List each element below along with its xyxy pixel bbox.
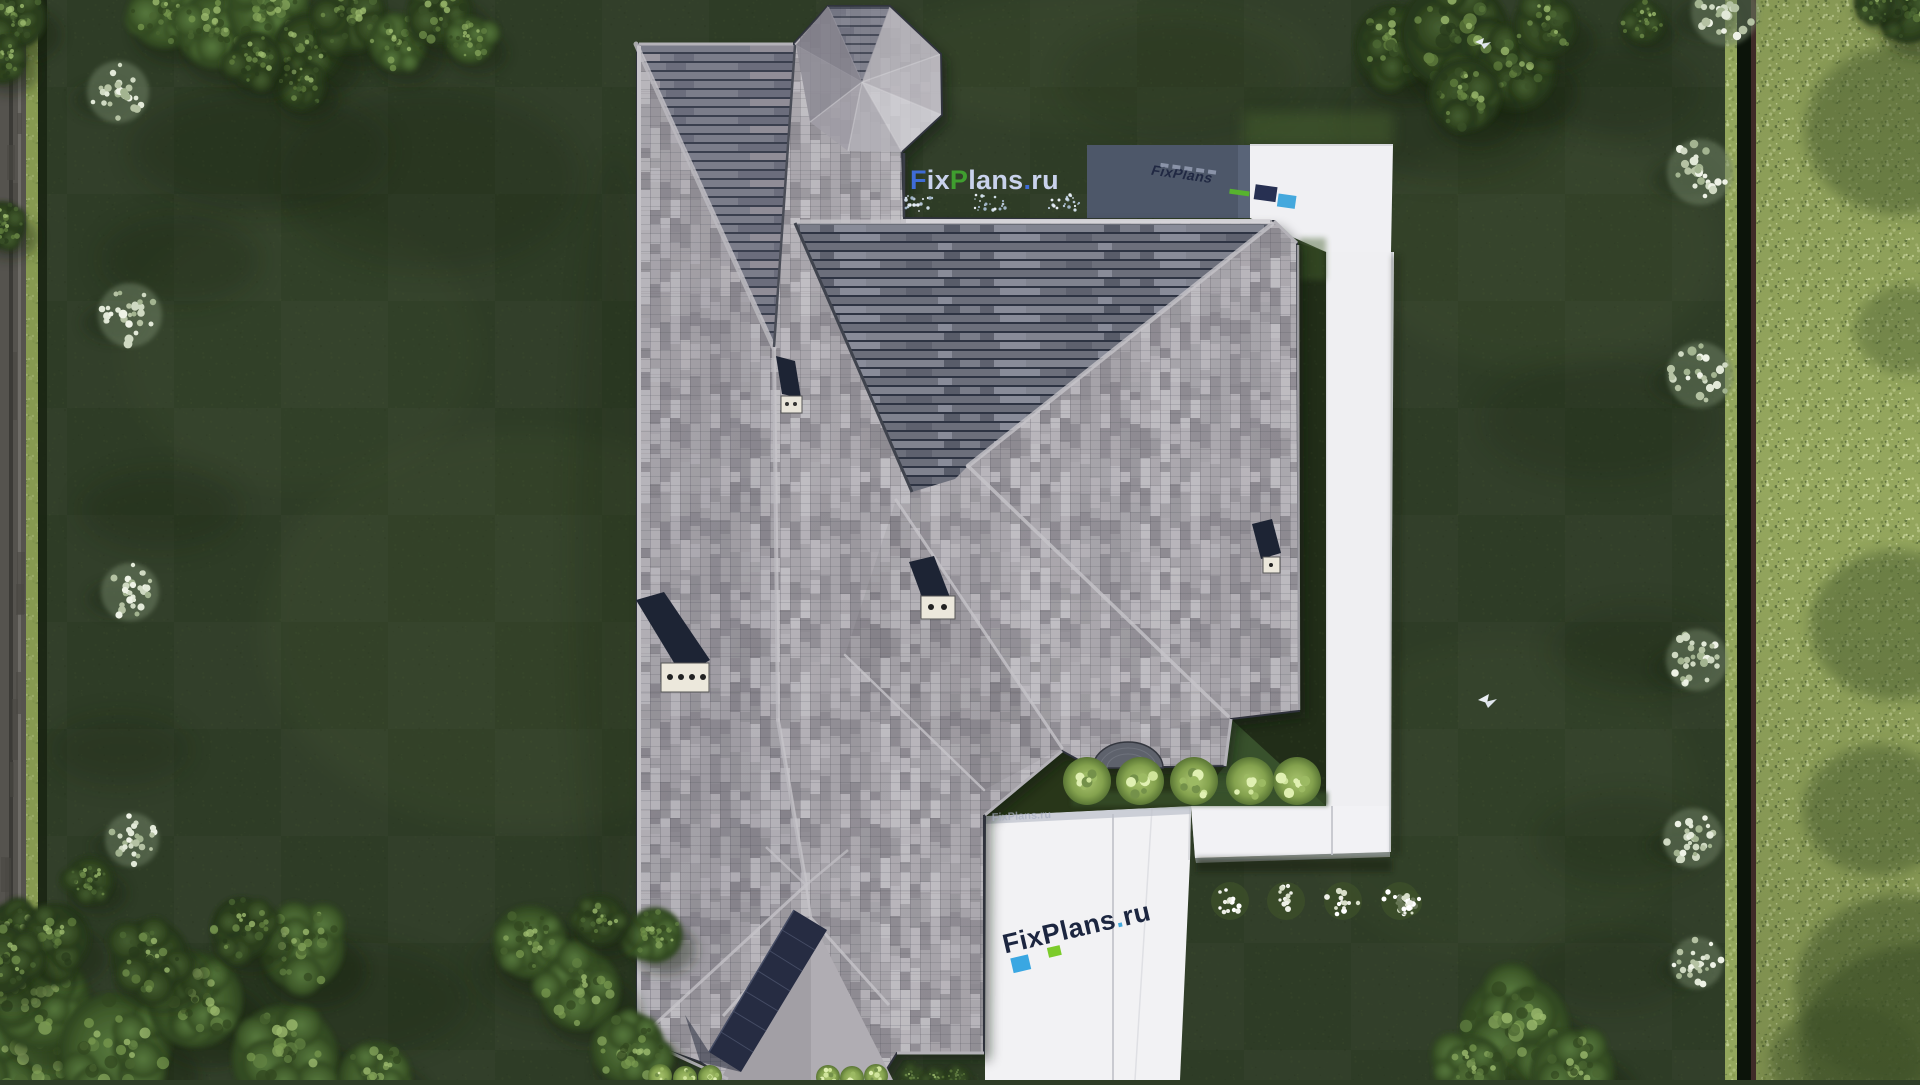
svg-text:FixPlans.ru: FixPlans.ru [910, 165, 1059, 195]
